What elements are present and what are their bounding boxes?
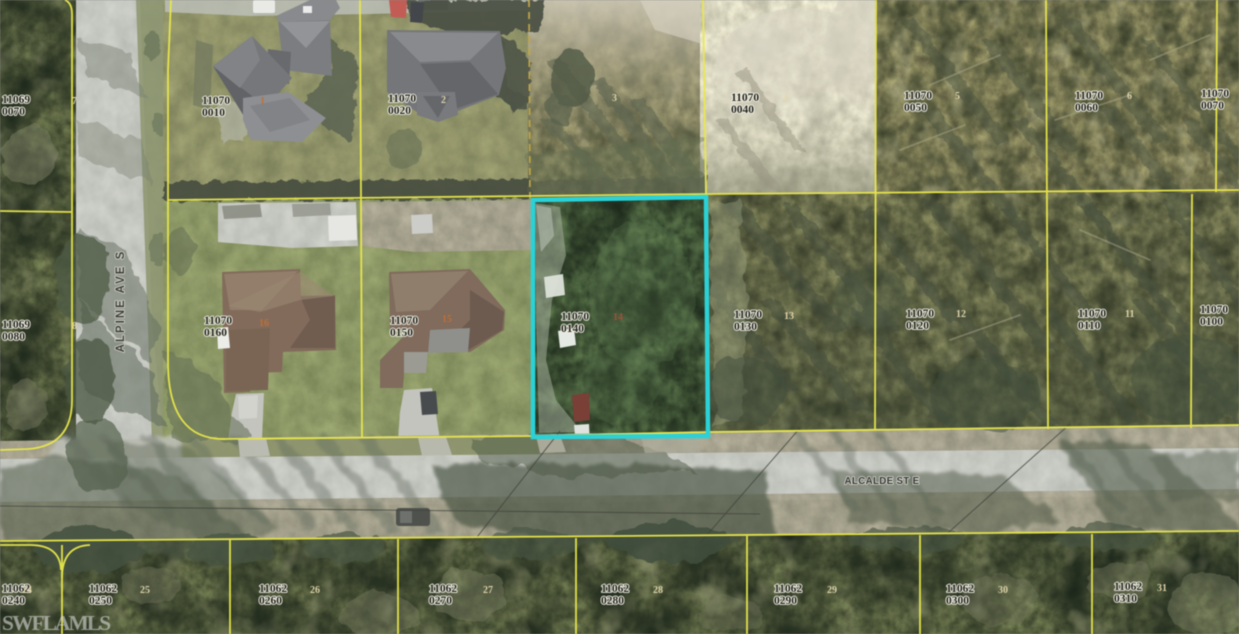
svg-text:6: 6 bbox=[1127, 91, 1132, 102]
svg-text:1: 1 bbox=[260, 96, 265, 107]
svg-text:13: 13 bbox=[784, 311, 794, 322]
svg-text:14: 14 bbox=[613, 312, 623, 323]
svg-text:4: 4 bbox=[783, 93, 788, 104]
svg-text:3: 3 bbox=[612, 93, 617, 104]
svg-text:7: 7 bbox=[72, 96, 77, 107]
svg-text:12: 12 bbox=[956, 309, 966, 320]
svg-text:2: 2 bbox=[441, 95, 446, 106]
svg-text:ALPINE AVE S: ALPINE AVE S bbox=[115, 250, 127, 353]
svg-text:26: 26 bbox=[310, 585, 320, 596]
svg-text:31: 31 bbox=[1157, 583, 1167, 594]
svg-text:15: 15 bbox=[442, 314, 452, 325]
svg-text:ALCALDE ST E: ALCALDE ST E bbox=[845, 476, 920, 487]
svg-text:29: 29 bbox=[827, 585, 837, 596]
svg-text:11: 11 bbox=[1125, 309, 1134, 320]
svg-text:28: 28 bbox=[653, 585, 663, 596]
svg-text:SWFLAMLS: SWFLAMLS bbox=[2, 611, 111, 634]
svg-text:24: 24 bbox=[22, 585, 32, 596]
svg-text:5: 5 bbox=[955, 91, 960, 102]
svg-text:16: 16 bbox=[259, 318, 269, 329]
svg-text:30: 30 bbox=[998, 585, 1008, 596]
svg-text:8: 8 bbox=[72, 321, 77, 332]
svg-text:25: 25 bbox=[140, 585, 150, 596]
svg-text:27: 27 bbox=[483, 585, 493, 596]
